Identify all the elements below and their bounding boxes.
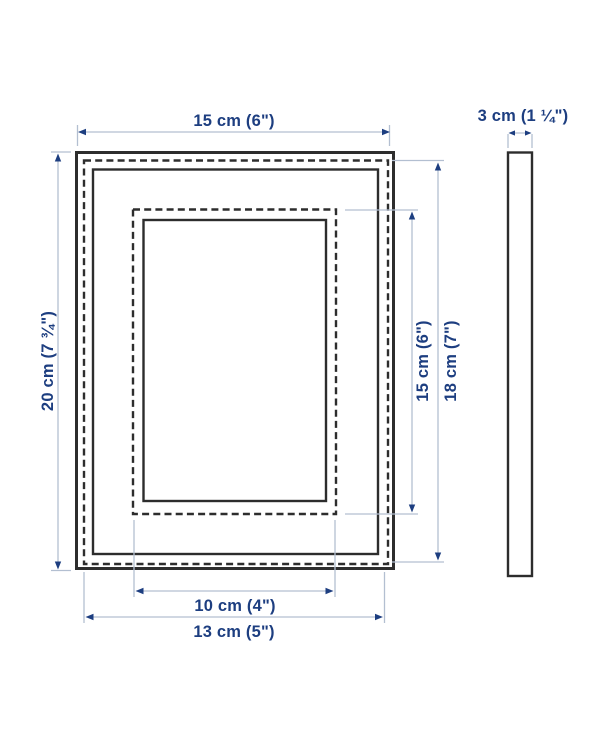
opening-width-label: 10 cm (4") (194, 597, 275, 615)
arrowhead-up-icon (55, 154, 61, 162)
dimension-outer-height: 20 cm (7 ¾") (39, 152, 71, 571)
arrowhead-right-icon (326, 588, 334, 594)
frame-inner-edge (93, 170, 378, 555)
frame-front-view (77, 153, 394, 569)
arrowhead-down-icon (409, 505, 415, 513)
arrowhead-right-icon (375, 614, 383, 620)
arrowhead-down-icon (435, 553, 441, 561)
frame-side-view (508, 153, 532, 577)
mat-opening-edge (144, 220, 327, 501)
diagram-canvas: 15 cm (6") 20 cm (7 ¾") 15 cm (6") (0, 0, 600, 750)
product-dimension-diagram: 15 cm (6") 20 cm (7 ¾") 15 cm (6") (0, 0, 600, 750)
opening-height-label: 15 cm (6") (414, 320, 432, 401)
frame-side-profile (508, 153, 532, 577)
arrowhead-left-icon (78, 129, 86, 135)
arrowhead-right-icon (525, 130, 532, 135)
depth-label: 3 cm (1 ¼") (478, 107, 569, 125)
arrowhead-left-icon (86, 614, 94, 620)
picture-height-label: 18 cm (7") (442, 320, 460, 401)
frame-outer-edge (77, 153, 394, 569)
outer-height-label: 20 cm (7 ¾") (39, 311, 57, 411)
outer-width-label: 15 cm (6") (193, 112, 274, 130)
arrowhead-down-icon (55, 562, 61, 570)
dimension-depth: 3 cm (1 ¼") (478, 107, 569, 148)
picture-width-label: 13 cm (5") (193, 623, 274, 641)
dimension-outer-width: 15 cm (6") (78, 112, 391, 146)
arrowhead-left-icon (136, 588, 144, 594)
arrowhead-right-icon (382, 129, 390, 135)
arrowhead-up-icon (435, 163, 441, 171)
mat-opening-dashed-outline (133, 210, 336, 515)
arrowhead-up-icon (409, 212, 415, 220)
arrowhead-left-icon (509, 130, 516, 135)
